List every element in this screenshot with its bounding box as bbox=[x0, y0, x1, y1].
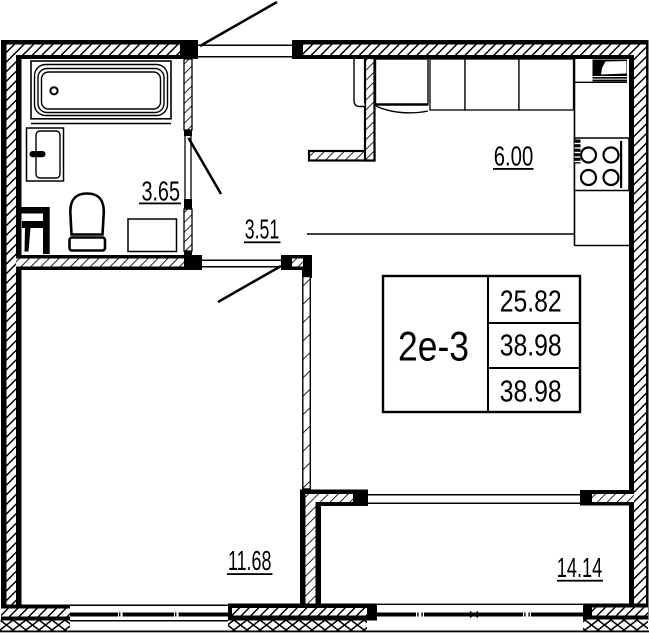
svg-text:6.00: 6.00 bbox=[494, 141, 534, 172]
svg-text:2е-3: 2е-3 bbox=[398, 323, 469, 370]
svg-text:14.14: 14.14 bbox=[557, 552, 603, 583]
svg-text:25.82: 25.82 bbox=[500, 284, 562, 319]
svg-text:38.98: 38.98 bbox=[500, 328, 562, 363]
svg-text:3.65: 3.65 bbox=[141, 176, 180, 207]
svg-text:38.98: 38.98 bbox=[500, 374, 562, 409]
svg-text:11.68: 11.68 bbox=[228, 545, 272, 576]
svg-text:3.51: 3.51 bbox=[245, 214, 280, 245]
